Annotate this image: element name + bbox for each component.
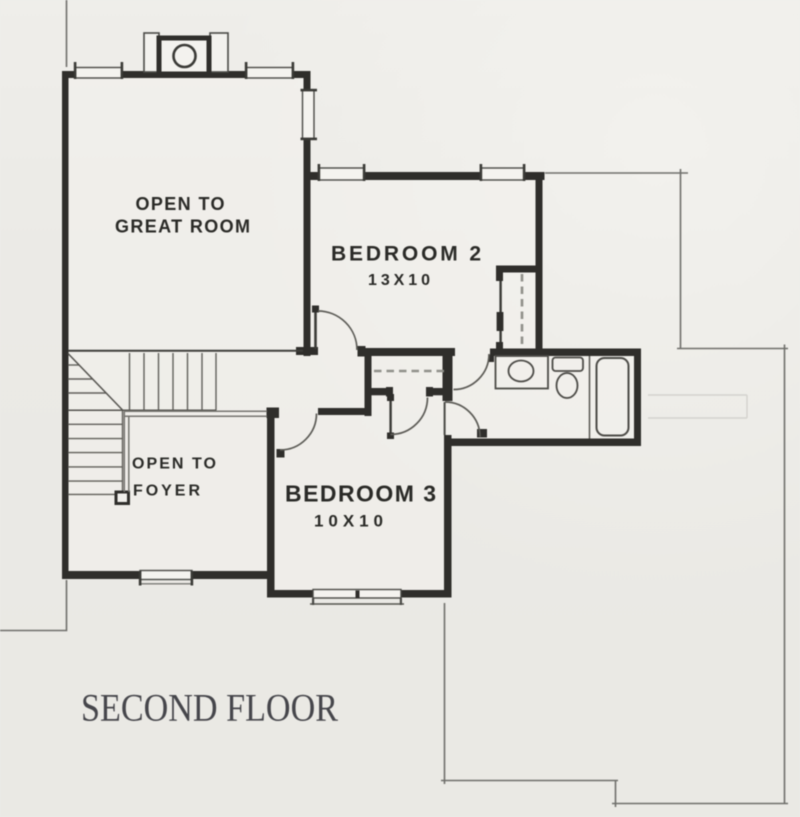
svg-text:SECOND FLOOR: SECOND FLOOR bbox=[81, 686, 339, 730]
svg-text:BEDROOM 3: BEDROOM 3 bbox=[285, 481, 436, 507]
svg-text:OPEN TO: OPEN TO bbox=[136, 194, 225, 214]
